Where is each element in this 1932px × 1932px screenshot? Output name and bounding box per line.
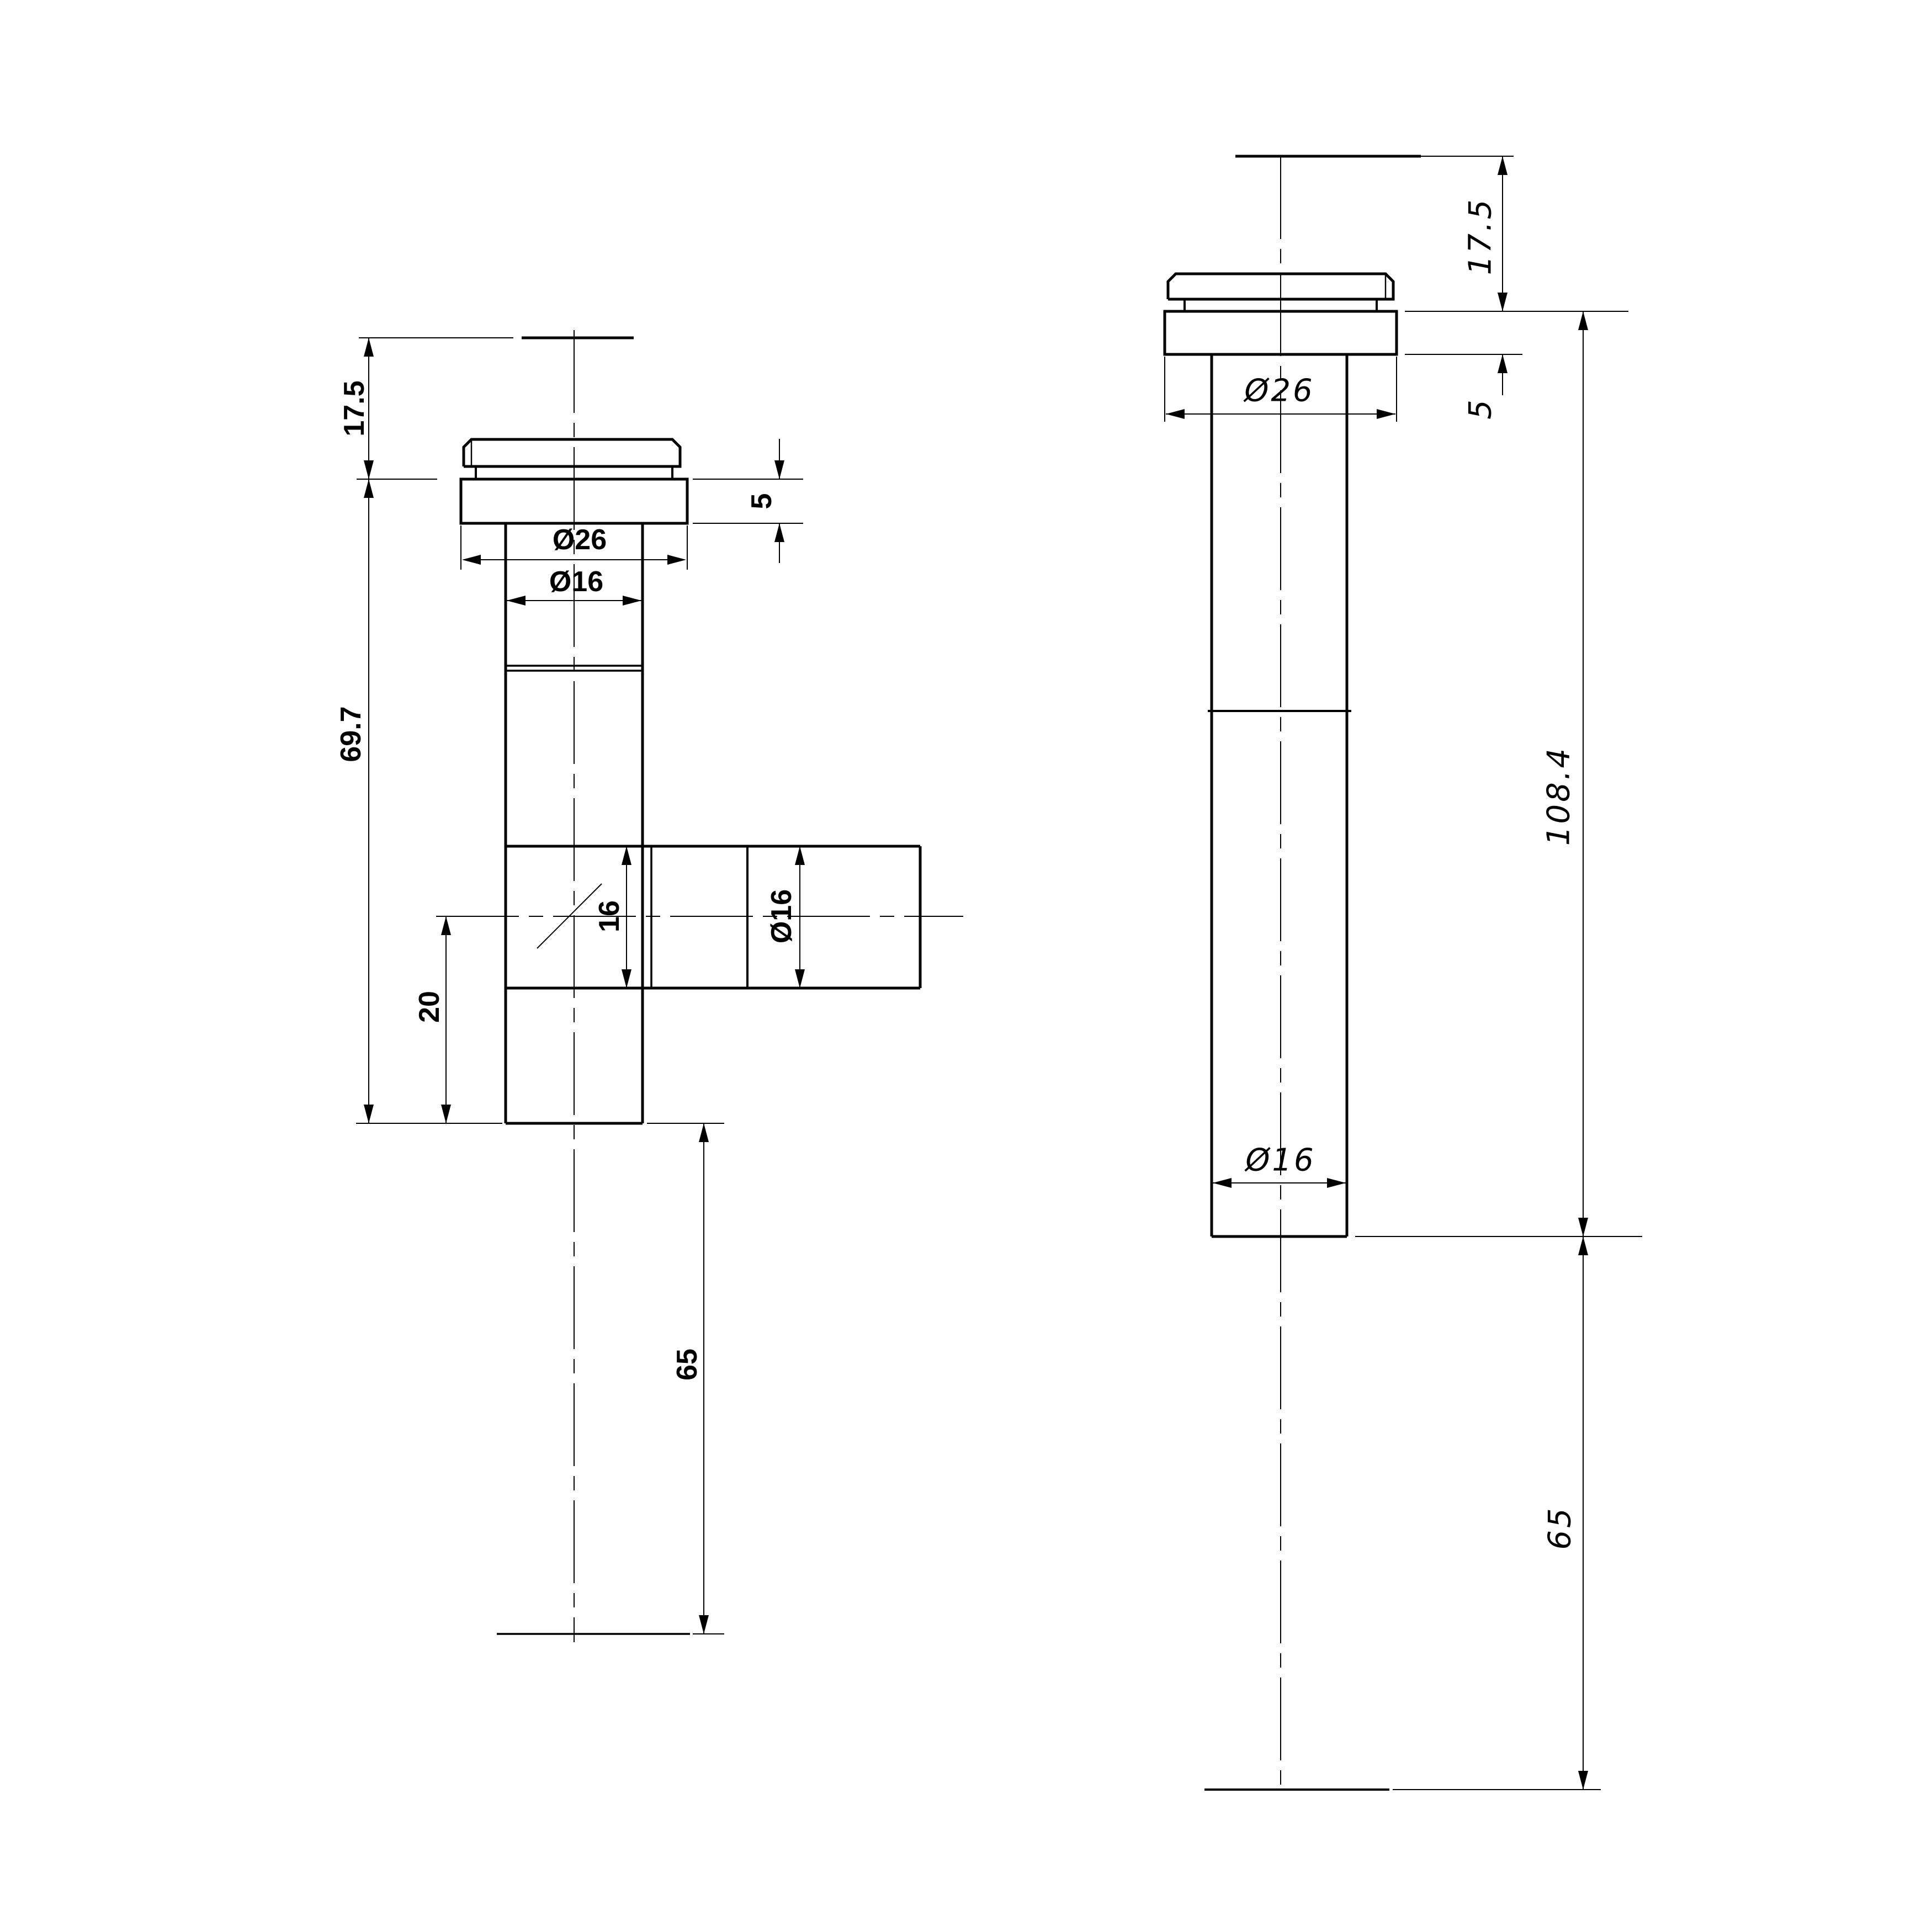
arrowhead (441, 916, 451, 935)
dim-label-side-5: 5 (1463, 397, 1499, 420)
arrowhead (795, 846, 805, 865)
arrowhead (1377, 409, 1395, 419)
dim-label-side-dia26: Ø26 (1243, 373, 1314, 409)
arrowhead (462, 555, 481, 565)
dim-label-front-dia16-top: Ø16 (549, 566, 603, 598)
dim-label-front-20: 20 (413, 991, 445, 1023)
arrowhead (623, 596, 641, 606)
dim-label-front-65: 65 (671, 1349, 703, 1381)
arrowhead (1498, 354, 1508, 373)
arrowhead (1327, 1178, 1346, 1188)
dim-label-front-16: 16 (593, 900, 625, 932)
arrowhead (1578, 1771, 1588, 1790)
front-cap-outline (464, 439, 680, 466)
arrowhead (667, 555, 686, 565)
front-view: 17.5 69.7 5 Ø26 Ø16 16 Ø16 (335, 330, 963, 1642)
arrowhead (441, 1105, 451, 1123)
side-view: 17.5 5 Ø26 108.4 Ø16 65 (1165, 156, 1642, 1790)
dim-label-front-dia16-branch: Ø16 (766, 889, 798, 943)
arrowhead (507, 596, 526, 606)
dim-label-front-69-7: 69.7 (335, 706, 367, 762)
arrowhead (1578, 1236, 1588, 1255)
arrowhead (1498, 293, 1508, 311)
arrowhead (1578, 311, 1588, 330)
dim-label-front-5: 5 (746, 493, 778, 509)
drawing-canvas: 17.5 69.7 5 Ø26 Ø16 16 Ø16 (0, 0, 1932, 1932)
arrowhead (774, 460, 784, 479)
arrowhead (774, 523, 784, 542)
technical-drawing: 17.5 69.7 5 Ø26 Ø16 16 Ø16 (0, 0, 1932, 1932)
arrowhead (364, 479, 374, 498)
dim-label-side-108-4: 108.4 (1541, 746, 1577, 846)
arrowhead (699, 1123, 709, 1142)
dim-label-side-65: 65 (1542, 1506, 1578, 1549)
arrowhead (1213, 1178, 1232, 1188)
arrowhead (1166, 409, 1185, 419)
arrowhead (364, 460, 374, 479)
dim-label-side-17-5: 17.5 (1463, 198, 1499, 275)
arrowhead (795, 969, 805, 988)
dim-label-front-dia26: Ø26 (553, 524, 607, 556)
arrowhead (364, 338, 374, 357)
arrowhead (1498, 156, 1508, 175)
arrowhead (699, 1615, 709, 1634)
dim-label-front-17-5: 17.5 (338, 380, 370, 436)
arrowhead (622, 969, 631, 988)
arrowhead (622, 846, 631, 865)
dim-label-side-dia16: Ø16 (1244, 1143, 1315, 1179)
arrowhead (364, 1105, 374, 1123)
arrowhead (1578, 1218, 1588, 1236)
